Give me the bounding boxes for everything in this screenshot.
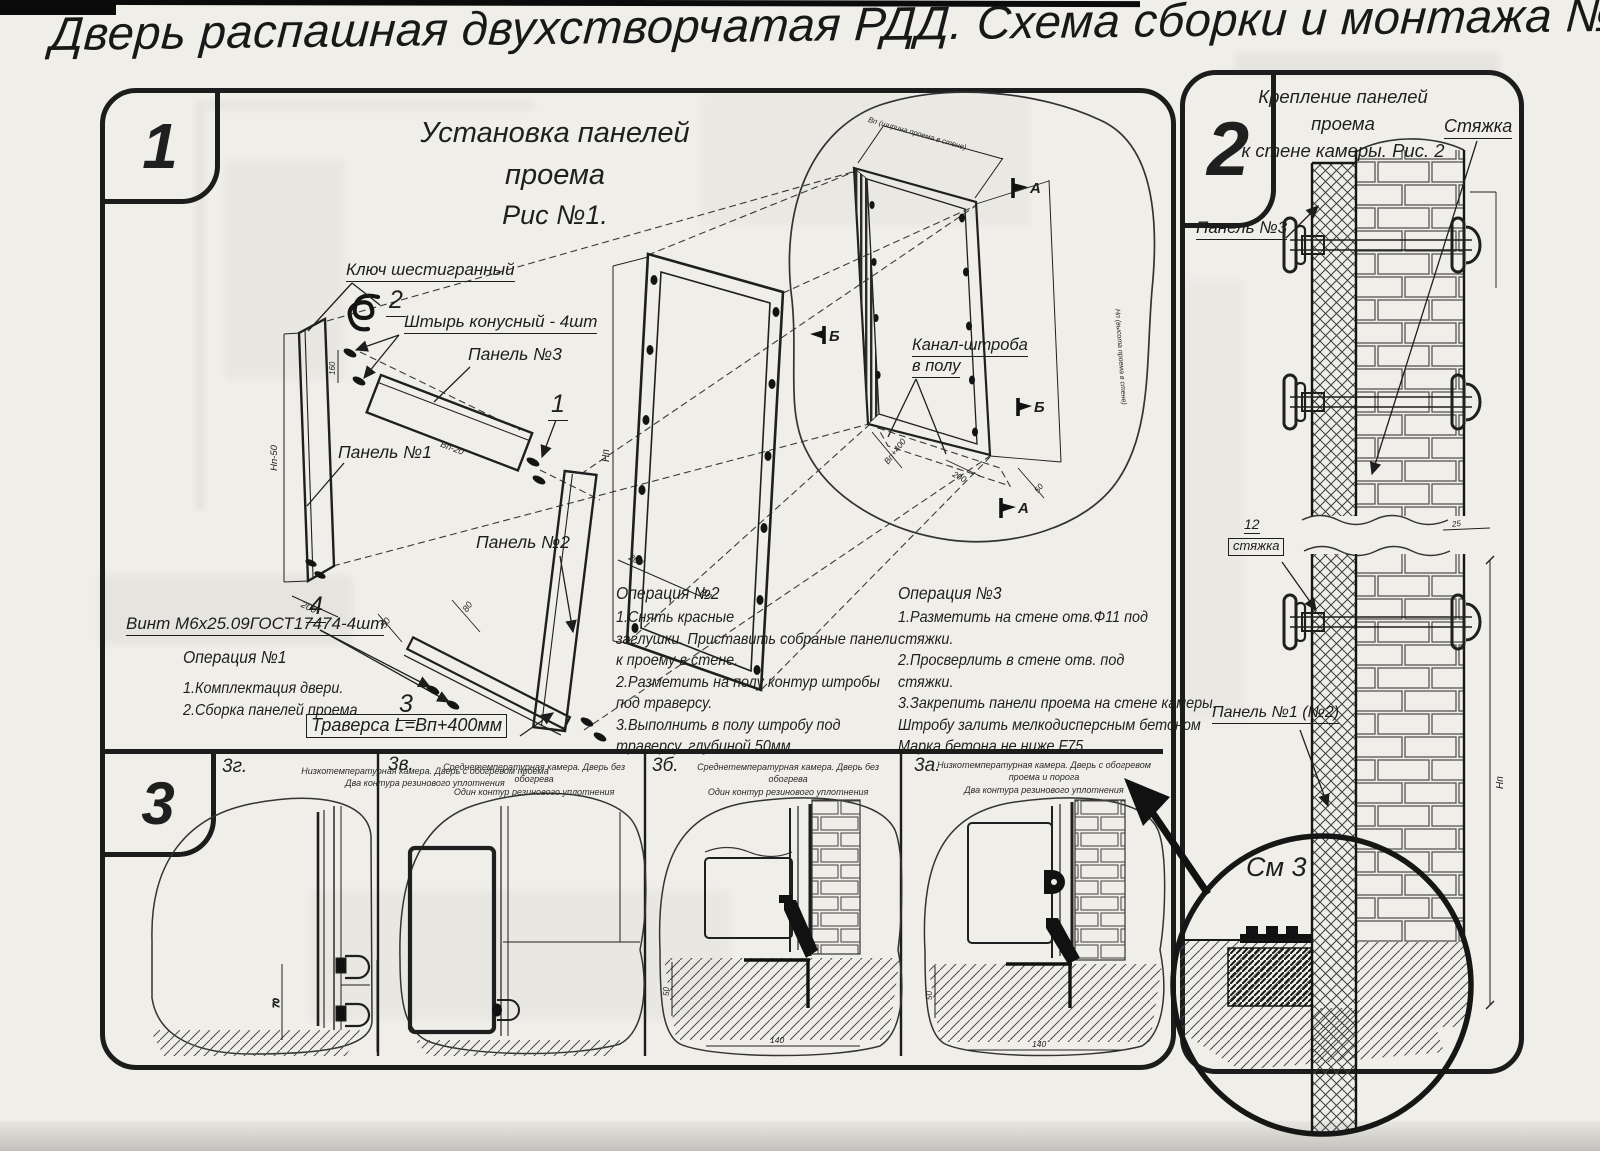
dim-label: Нп bbox=[1495, 776, 1506, 789]
label-pin: Штырь конусный - 4шт bbox=[404, 312, 597, 334]
dim-label: 200 bbox=[626, 551, 645, 567]
section1-heading: Установка панелей проема Рис №1. bbox=[385, 112, 725, 235]
label-tie: Стяжка bbox=[1444, 116, 1512, 139]
operation3-text: Операция №3 1.Разметить на стене отв.Ф11… bbox=[898, 582, 1217, 758]
wall-section-shape bbox=[1302, 139, 1474, 1005]
op3-line: 2.Просверлить в стене отв. под bbox=[898, 650, 1217, 671]
op1-line: 1.Комплектация двери. bbox=[183, 678, 358, 699]
op2-line: 1.Снять красные bbox=[616, 607, 897, 628]
section2-heading-line2: к стене камеры. Рис. 2 bbox=[1228, 138, 1458, 165]
dim-label: 140 bbox=[770, 1035, 784, 1045]
marker-b-left: Б bbox=[829, 328, 840, 345]
dim-label: 70 bbox=[271, 998, 281, 1008]
operation2-title: Операция №2 bbox=[616, 582, 897, 605]
label-tie-item: стяжка bbox=[1228, 538, 1284, 556]
label-channel-line2: в полу bbox=[912, 357, 960, 378]
section2-heading: Крепление панелей проема к стене камеры.… bbox=[1228, 84, 1458, 164]
operation1-text: Операция №1 1.Комплектация двери. 2.Сбор… bbox=[183, 646, 358, 721]
dim-label: 160 bbox=[328, 361, 337, 375]
section1-heading-line1: Установка панелей проема bbox=[385, 112, 725, 196]
panel1-shape bbox=[299, 319, 334, 581]
wall-opening-shape: Вп (ширина проема в стене) Нп (высота пр… bbox=[789, 92, 1154, 541]
caption-line: Среднетемпературная камера. Дверь без об… bbox=[432, 762, 636, 787]
op2-line: к проему в стене. bbox=[616, 650, 897, 671]
panel2-shape bbox=[533, 471, 596, 731]
dim-label: Вп+400 bbox=[882, 436, 908, 466]
op1-line: 2.Сборка панелей проема bbox=[183, 700, 358, 721]
dim-label: Нп (высота проема в стене) bbox=[1113, 309, 1127, 405]
cell-3v-caption: Среднетемпературная камера. Дверь без об… bbox=[432, 762, 636, 799]
detail-3v-drawing bbox=[400, 793, 646, 1056]
op2-line: заглушки. Приставить собраные панели bbox=[616, 629, 897, 650]
dim-label: 25 bbox=[1451, 519, 1462, 529]
dim-label: 50 bbox=[925, 991, 934, 1000]
dim-label: Вп (ширина проема в стене) bbox=[867, 115, 968, 152]
cell-3a-caption: Низкотемпературная камера. Дверь с обогр… bbox=[930, 760, 1158, 797]
caption-line: Один контур резинового уплотнения bbox=[686, 787, 890, 799]
label-channel-line1: Канал-штроба bbox=[912, 336, 1028, 357]
label-panel12: Панель №1 (№2) bbox=[1212, 704, 1339, 724]
op2-line: под траверсу. bbox=[616, 693, 897, 714]
label-panel2: Панель №2 bbox=[476, 532, 570, 552]
dim-label: Нп bbox=[601, 449, 612, 462]
cell-3b-label: 3б. bbox=[652, 755, 679, 777]
label-see-detail: См 3 bbox=[1246, 852, 1307, 883]
callout-panel: 1 bbox=[548, 392, 568, 421]
section2-heading-line1: Крепление панелей проема bbox=[1228, 84, 1458, 138]
label-hex-key: Ключ шестигранный bbox=[346, 260, 515, 282]
label-tie-item-no: 12 bbox=[1244, 516, 1260, 534]
label-panel3: Панель №3 bbox=[468, 344, 562, 364]
label-channel: Канал-штроба в полу bbox=[912, 336, 1028, 378]
op2-line: 3.Выполнить в полу штробу под bbox=[616, 715, 897, 736]
caption-line: Один контур резинового уплотнения bbox=[432, 787, 636, 799]
label-panel3-sec2: Панель №3 bbox=[1196, 218, 1287, 240]
op3-line: стяжки. bbox=[898, 672, 1217, 693]
pin-spacing-dim: 160 bbox=[328, 350, 338, 383]
caption-line: Низкотемпературная камера. Дверь с обогр… bbox=[930, 760, 1158, 785]
marker-a-top: А bbox=[1029, 180, 1041, 197]
section1-heading-line2: Рис №1. bbox=[385, 196, 725, 235]
label-panel1: Панель №1 bbox=[338, 442, 432, 462]
op2-line: 2.Разметить на полу контур штробы bbox=[616, 672, 897, 693]
dim-label: 140 bbox=[1032, 1039, 1046, 1049]
op3-line: Марка бетона не ниже F75. bbox=[898, 736, 1217, 757]
label-screw: Винт М6х25.09ГОСТ17474-4шт bbox=[126, 614, 384, 636]
callout-pin: 2 bbox=[386, 288, 406, 317]
dim-label: Нп-50 bbox=[269, 444, 280, 471]
marker-a-bottom: А bbox=[1017, 500, 1029, 517]
drawing-title: Дверь распашная двухстворчатая РДД. Схем… bbox=[49, 0, 1572, 61]
cell-3g-label: 3г. bbox=[222, 756, 247, 778]
op3-line: Штробу залить мелкодисперсным бетоном bbox=[898, 715, 1217, 736]
detail-3b-drawing: 50 140 bbox=[660, 798, 902, 1056]
detail-3g-drawing: 70 bbox=[150, 798, 377, 1056]
dim-label: Вп-20 bbox=[439, 439, 465, 457]
caption-line: Среднетемпературная камера. Дверь без об… bbox=[686, 762, 890, 787]
caption-line: Два контура резинового уплотнения bbox=[930, 785, 1158, 797]
cell-3b-caption: Среднетемпературная камера. Дверь без об… bbox=[686, 762, 890, 799]
opening-anchor-dots bbox=[869, 201, 978, 437]
marker-b-right: Б bbox=[1034, 399, 1045, 416]
op3-line: 3.Закрепить панели проема на стене камер… bbox=[898, 693, 1217, 714]
dim-label: 50 bbox=[662, 987, 671, 996]
operation2-text: Операция №2 1.Снять красные заглушки. Пр… bbox=[616, 582, 897, 758]
op3-line: стяжки. bbox=[898, 629, 1217, 650]
operation3-title: Операция №3 bbox=[898, 582, 1217, 605]
dim-label: 50 bbox=[1033, 482, 1046, 495]
op3-line: 1.Разметить на стене отв.Ф11 под bbox=[898, 607, 1217, 628]
operation1-title: Операция №1 bbox=[183, 646, 358, 669]
